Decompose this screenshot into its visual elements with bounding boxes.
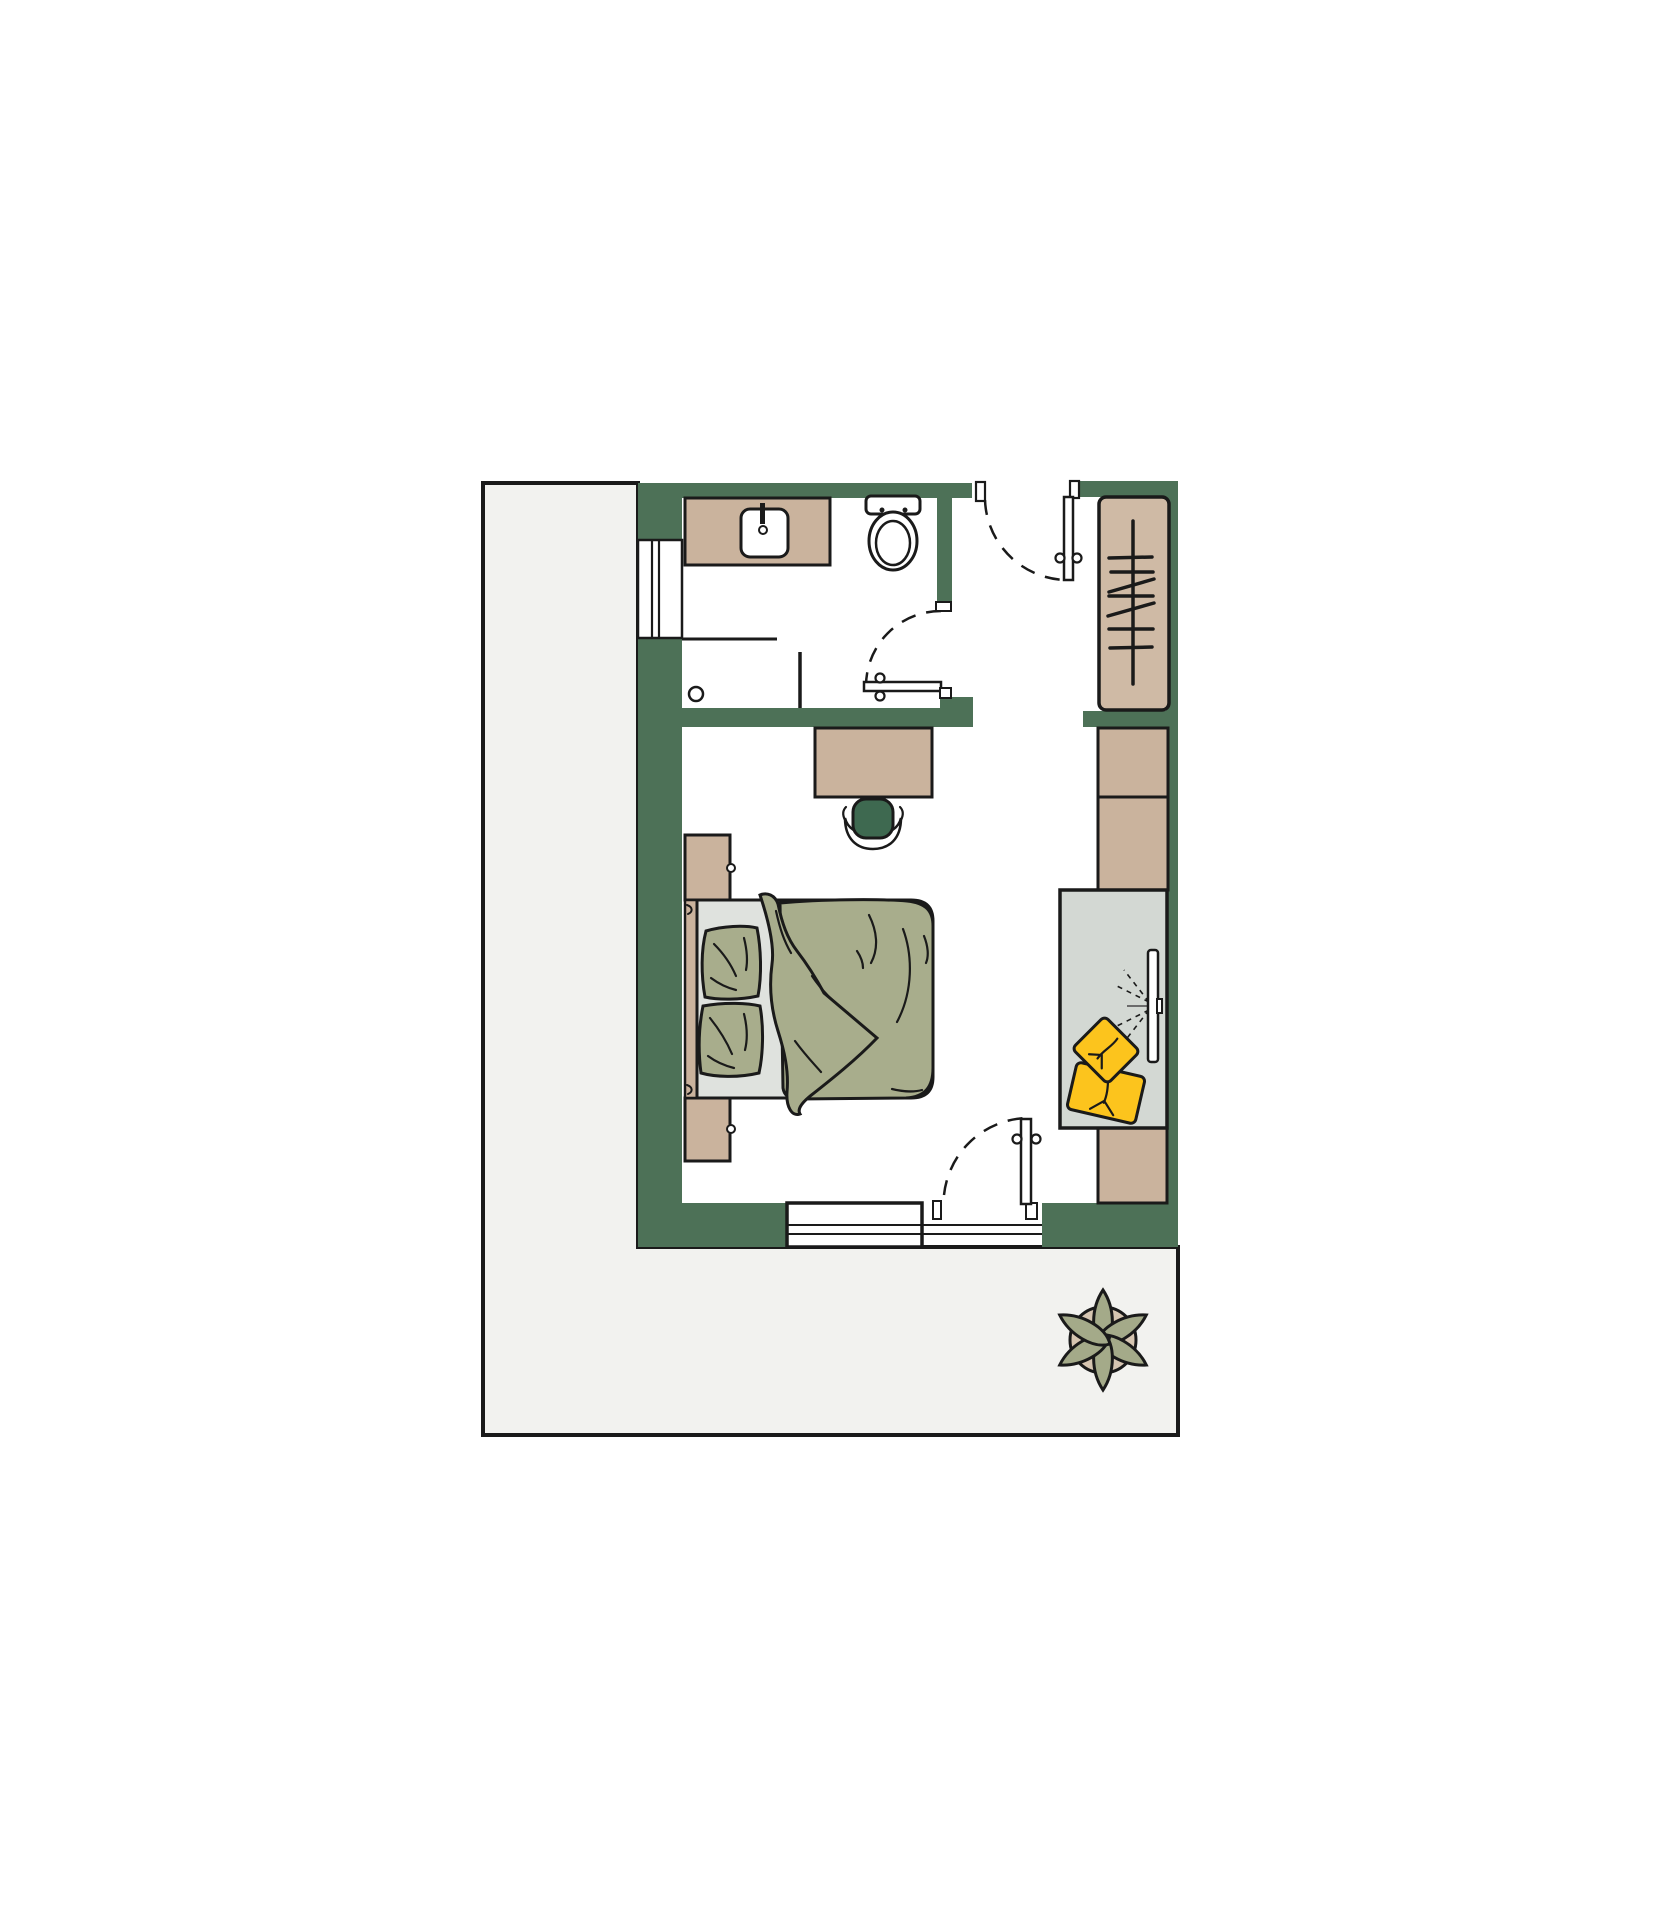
door-knob [1073,554,1082,563]
door-jamb [933,1201,941,1219]
nightstand-bottom [685,1098,730,1161]
door-knob [876,674,885,683]
wall-top-entry [1080,481,1178,497]
cabinet-middle [1098,797,1168,890]
shower-drain [689,687,703,701]
door-swing-arc [944,1118,1026,1195]
door-leaf [1064,497,1073,580]
desk-chair [843,799,903,849]
cabinet-lower [1098,1128,1167,1203]
nightstand-knob [727,864,735,872]
bathroom-door [864,602,951,701]
door-jamb [1070,481,1079,498]
door-knob [1032,1135,1041,1144]
hanger-line [1110,647,1152,648]
pillow-body [699,1003,762,1076]
entry-door [976,481,1082,580]
door-jamb [976,482,985,501]
wall-bottom-left [638,1203,787,1247]
faucet-dot [759,526,767,534]
toilet-bolt [880,508,885,513]
door-jamb [936,602,951,611]
pillow-top [702,926,760,999]
toilet [866,496,920,570]
chair-seat [853,799,893,838]
wall-bottom-right [1042,1203,1178,1247]
toilet-bolt [903,508,908,513]
door-knob [1013,1135,1022,1144]
nightstand-top [685,835,730,900]
headboard [685,900,697,1098]
wall-bathroom-bottom [682,708,973,727]
floor-plan-page [0,0,1662,1920]
door-leaf [1021,1119,1031,1204]
floor-plan-svg [0,0,1662,1920]
door-jamb [1026,1203,1037,1219]
door-knob [876,692,885,701]
sideboard [1060,890,1167,1128]
wall-top-bathroom [638,483,972,498]
hanger-line [1109,557,1152,558]
faucet-icon [760,503,765,524]
shower [682,639,800,708]
duvet [760,894,933,1115]
wardrobe [1099,497,1169,710]
nightstand-knob [727,1125,735,1133]
door-hinge-plate [940,688,951,698]
radiator [638,540,682,638]
vanity-counter [685,498,830,565]
door-leaf [864,682,941,691]
balcony-door [922,1118,1042,1234]
wall-bathroom-corner-post [940,697,973,727]
wall-bathroom-right [937,497,952,601]
window [787,1203,922,1247]
door-knob [1056,554,1065,563]
door-swing-arc [985,500,1068,580]
cabinet-upper [1098,728,1168,797]
double-bed [685,835,933,1161]
tv-mount [1157,999,1162,1013]
pillow-bottom [699,1003,762,1076]
desk [815,728,932,797]
wall-hall-stub [1083,711,1178,727]
